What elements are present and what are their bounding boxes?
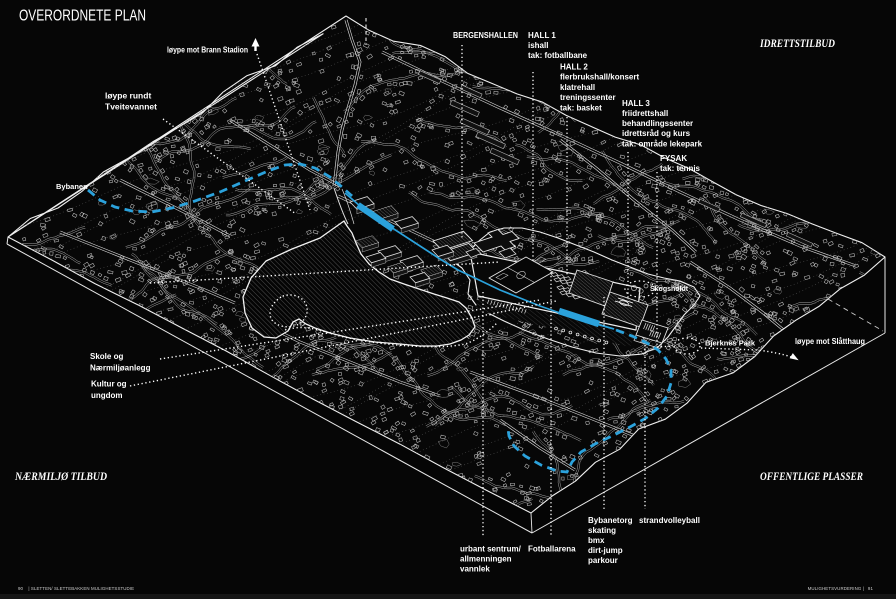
svg-text:friidrettshall: friidrettshall bbox=[622, 109, 668, 118]
svg-text:Bybanen: Bybanen bbox=[56, 182, 88, 191]
svg-text:tak: område lekepark: tak: område lekepark bbox=[622, 140, 703, 149]
svg-text:løype mot Slåtthaug: løype mot Slåtthaug bbox=[795, 337, 865, 346]
svg-text:Kultur og: Kultur og bbox=[91, 380, 127, 389]
svg-text:urbant sentrum/: urbant sentrum/ bbox=[460, 545, 522, 554]
svg-text:Bybanetorg: Bybanetorg bbox=[588, 516, 633, 525]
svg-text:Fotballarena: Fotballarena bbox=[528, 545, 576, 554]
svg-text:tak: tennis: tak: tennis bbox=[660, 164, 701, 173]
svg-text:løype rundt: løype rundt bbox=[105, 91, 151, 101]
svg-text:behandlingssenter: behandlingssenter bbox=[622, 119, 693, 128]
svg-text:allmenningen: allmenningen bbox=[460, 555, 512, 564]
svg-text:FYSAK: FYSAK bbox=[660, 154, 687, 163]
svg-text:Nærmiljøanlegg: Nærmiljøanlegg bbox=[90, 364, 151, 373]
svg-text:ishall: ishall bbox=[528, 41, 548, 50]
svg-text:skating: skating bbox=[588, 526, 616, 535]
svg-text:Tveitevannet: Tveitevannet bbox=[105, 102, 157, 112]
svg-text:HALL 3: HALL 3 bbox=[622, 99, 650, 108]
svg-text:Skogsholdt: Skogsholdt bbox=[650, 286, 689, 293]
svg-text:vannlek: vannlek bbox=[460, 565, 490, 574]
svg-text:parkour: parkour bbox=[588, 556, 618, 565]
svg-text:Skole og: Skole og bbox=[90, 352, 123, 361]
svg-text:dirt-jump: dirt-jump bbox=[588, 546, 623, 555]
svg-text:treningssenter: treningssenter bbox=[560, 93, 616, 102]
svg-text:klatrehall: klatrehall bbox=[560, 83, 595, 92]
svg-text:tak: basket: tak: basket bbox=[560, 104, 602, 113]
svg-text:NÆRMILJØ TILBUD: NÆRMILJØ TILBUD bbox=[14, 471, 107, 483]
svg-text:flerbrukshall/konsert: flerbrukshall/konsert bbox=[560, 73, 639, 82]
svg-text:bmx: bmx bbox=[588, 536, 605, 545]
svg-text:tak: fotballbane: tak: fotballbane bbox=[528, 51, 588, 60]
svg-text:løype mot Brann Stadion: løype mot Brann Stadion bbox=[167, 46, 248, 55]
svg-text:OVERORDNETE PLAN: OVERORDNETE PLAN bbox=[19, 8, 146, 25]
svg-text:HALL 2: HALL 2 bbox=[560, 63, 588, 72]
svg-text:strandvolleyball: strandvolleyball bbox=[639, 516, 700, 525]
svg-text:IDRETTSTILBUD: IDRETTSTILBUD bbox=[759, 38, 835, 50]
svg-text:HALL 1: HALL 1 bbox=[528, 31, 556, 40]
svg-text:ungdom: ungdom bbox=[91, 391, 123, 400]
svg-text:BERGENSHALLEN: BERGENSHALLEN bbox=[453, 31, 518, 40]
svg-text:Bjerknes Park: Bjerknes Park bbox=[705, 339, 756, 348]
svg-text:MULIGHETSVURDERING | 91: MULIGHETSVURDERING | 91 bbox=[808, 586, 874, 591]
svg-text:90 | SLETTEN/ SLETTEBAKKEN: 90 | SLETTEN/ SLETTEBAKKEN MULIGHETSSTUD… bbox=[18, 586, 134, 591]
svg-text:OFFENTLIGE PLASSER: OFFENTLIGE PLASSER bbox=[760, 471, 863, 483]
svg-text:idrettsråd og kurs: idrettsråd og kurs bbox=[622, 129, 691, 138]
